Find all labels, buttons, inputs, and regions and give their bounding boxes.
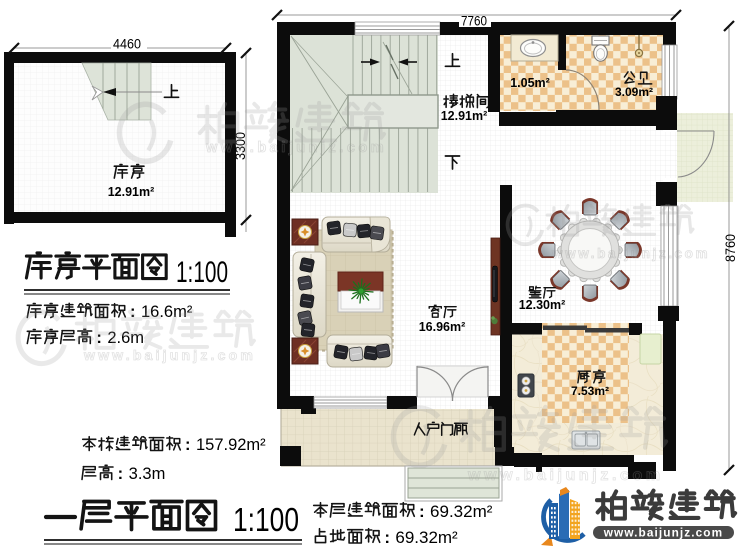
- svg-text:157.92m²: 157.92m²: [196, 436, 266, 454]
- svg-text:16.96m²: 16.96m²: [419, 320, 466, 334]
- svg-text:1:100: 1:100: [176, 256, 228, 289]
- svg-text:8760: 8760: [723, 234, 738, 262]
- svg-text:1.05m²: 1.05m²: [510, 76, 550, 90]
- svg-text:4460: 4460: [113, 37, 141, 52]
- svg-text:1:100: 1:100: [233, 501, 299, 538]
- svg-text::: :: [118, 465, 124, 483]
- svg-text:12.91m²: 12.91m²: [108, 185, 155, 199]
- svg-text:7.53m²: 7.53m²: [571, 384, 609, 398]
- svg-text:www.baijunjz.com: www.baijunjz.com: [205, 140, 387, 156]
- svg-text:www.baijunjz.com: www.baijunjz.com: [551, 246, 710, 261]
- svg-text::: :: [185, 436, 191, 454]
- svg-text:12.91m²: 12.91m²: [441, 109, 488, 123]
- svg-text:12.30m²: 12.30m²: [519, 298, 566, 312]
- svg-text:7760: 7760: [461, 14, 487, 29]
- svg-text:3.09m²: 3.09m²: [615, 85, 653, 99]
- svg-text:www.baijunjz.com: www.baijunjz.com: [83, 347, 256, 363]
- svg-text:www.baijunjz.com: www.baijunjz.com: [603, 526, 723, 540]
- svg-text::: :: [384, 528, 390, 547]
- svg-text:69.32m²: 69.32m²: [395, 528, 458, 547]
- svg-text::: :: [419, 502, 425, 521]
- svg-text:69.32m²: 69.32m²: [430, 502, 493, 521]
- svg-text:www.baijunjz.com: www.baijunjz.com: [467, 467, 664, 484]
- svg-text:3.3m: 3.3m: [129, 465, 166, 483]
